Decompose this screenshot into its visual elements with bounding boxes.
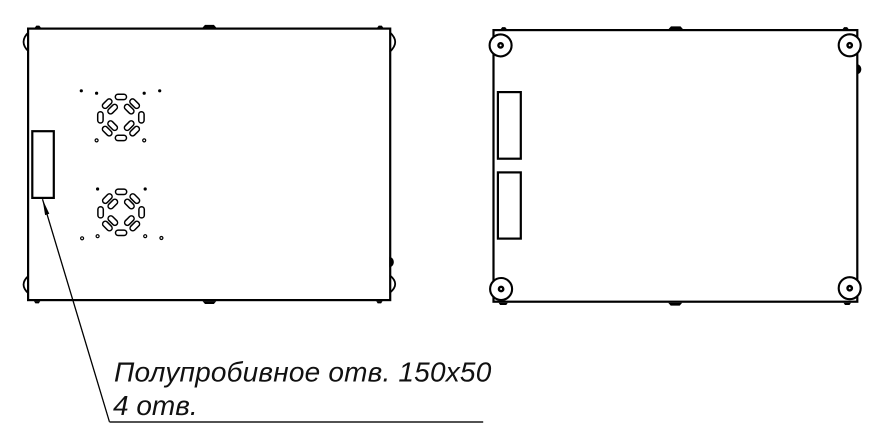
svg-text:Полупробивное отв. 150х50: Полупробивное отв. 150х50 [114, 357, 492, 388]
svg-text:4 отв.: 4 отв. [113, 390, 198, 421]
